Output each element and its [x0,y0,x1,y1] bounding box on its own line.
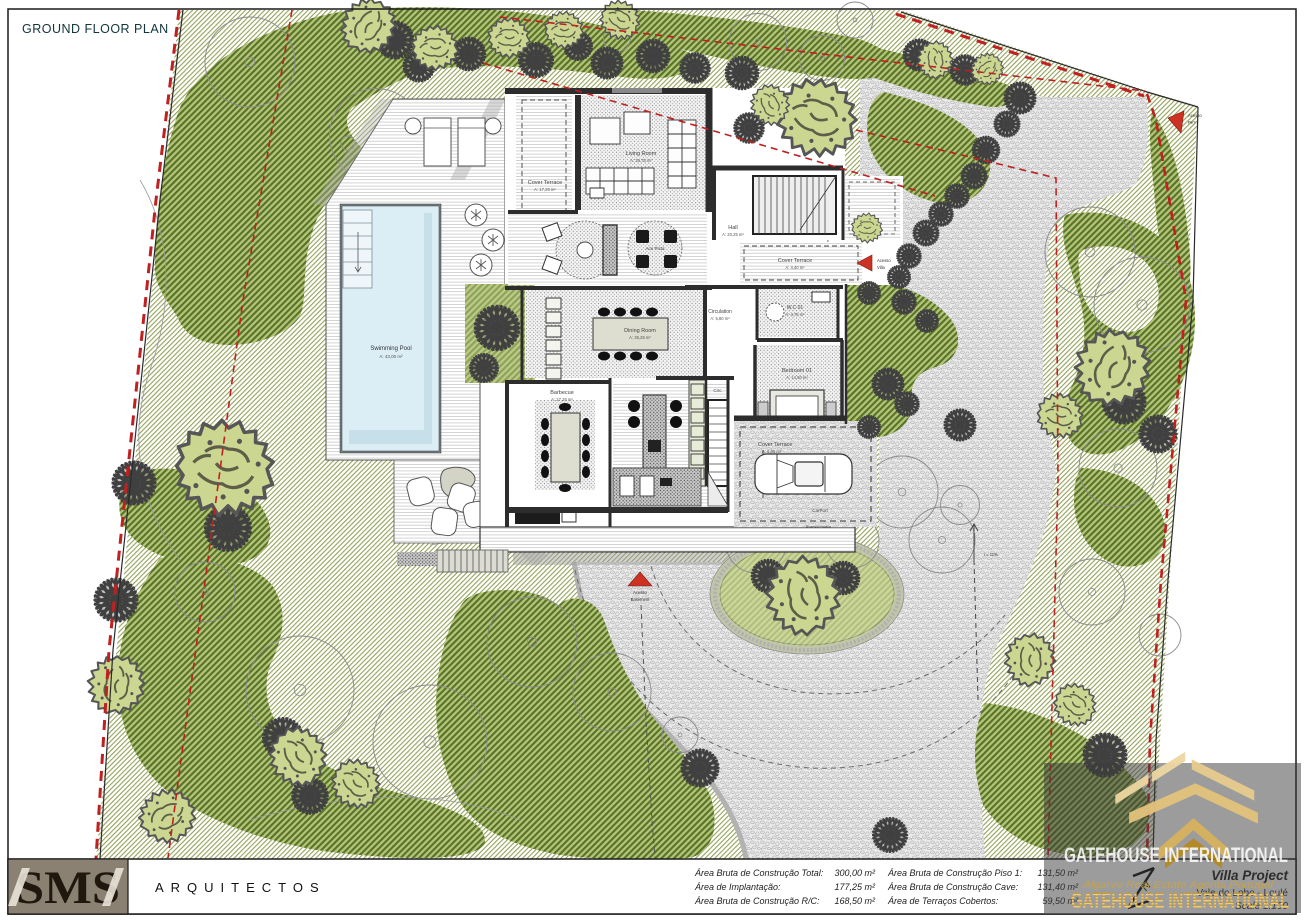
svg-text:A: 20,25 m²: A: 20,25 m² [722,232,744,237]
svg-text:177,25 m²: 177,25 m² [834,882,876,892]
svg-text:Acesso: Acesso [633,590,647,595]
svg-text:Pe?: Pe? [1188,120,1196,125]
svg-text:Hall: Hall [728,225,737,231]
svg-text:Cover Terrace: Cover Terrace [758,442,792,448]
svg-text:300,00 m²: 300,00 m² [834,868,876,878]
svg-text:Área Bruta de Construção Piso: Área Bruta de Construção Piso 1: [887,868,1023,878]
svg-text:Área Bruta de Construção R/C:: Área Bruta de Construção R/C: [694,896,820,906]
svg-text:GROUND FLOOR PLAN: GROUND FLOOR PLAN [22,22,169,36]
svg-text:Circulation: Circulation [708,309,732,315]
svg-text:Circ.: Circ. [713,388,722,393]
svg-text:Basement: Basement [631,597,651,602]
svg-text:A: 17,25 m²: A: 17,25 m² [534,187,556,192]
svg-text:Bedroom 01: Bedroom 01 [782,368,812,374]
svg-text:Living Room: Living Room [626,151,657,157]
svg-text:SMS: SMS [16,862,120,914]
svg-text:Área Bruta de Construção Total: Área Bruta de Construção Total: [694,868,824,878]
svg-text:Villa: Villa [877,265,886,270]
svg-text:Barbecue: Barbecue [550,390,574,396]
svg-text:Área de Terraços Cobertos:: Área de Terraços Cobertos: [887,896,999,906]
svg-text:A: 4,75 m²: A: 4,75 m² [785,312,805,317]
svg-text:A: 35,25 m²: A: 35,25 m² [629,335,651,340]
svg-text:Branco/Aware: Branco/Aware [806,524,832,529]
svg-text:i = 11%: i = 11% [984,552,998,557]
svg-text:Ace Pista: Ace Pista [645,246,665,251]
svg-text:A: 4,40 m²: A: 4,40 m² [785,265,805,270]
svg-text:GATEHOUSE INTERNATIONAL: GATEHOUSE INTERNATIONAL [1064,844,1288,867]
svg-text:GATEHOUSE INTERNATIONAL: GATEHOUSE INTERNATIONAL [1071,888,1289,913]
svg-text:ARQUITECTOS: ARQUITECTOS [155,880,326,895]
svg-text:Cover Terrace: Cover Terrace [528,180,562,186]
svg-text:A: 43,00 m²: A: 43,00 m² [379,354,403,359]
svg-text:A: 27,25 m²: A: 27,25 m² [551,397,573,402]
svg-text:A: 5,80 m²: A: 5,80 m² [710,316,730,321]
svg-text:Acesso: Acesso [1188,113,1202,118]
svg-text:Área de Implantação:: Área de Implantação: [694,882,781,892]
svg-text:168,50 m²: 168,50 m² [834,896,876,906]
svg-text:A: 14,50 m²: A: 14,50 m² [786,375,808,380]
svg-text:W.C 01: W.C 01 [787,305,804,311]
svg-text:A: 6,00 m²: A: 6,00 m² [762,449,782,454]
svg-text:Swimming Pool: Swimming Pool [370,346,411,352]
svg-text:A: 39,75 m²: A: 39,75 m² [630,158,652,163]
svg-text:Área Bruta de Construção Cave:: Área Bruta de Construção Cave: [887,882,1019,892]
svg-text:Acesso: Acesso [877,258,891,263]
svg-text:Dining Room: Dining Room [624,328,656,334]
svg-text:Cover Terrace: Cover Terrace [778,258,812,264]
svg-text:CarPort: CarPort [812,508,828,513]
